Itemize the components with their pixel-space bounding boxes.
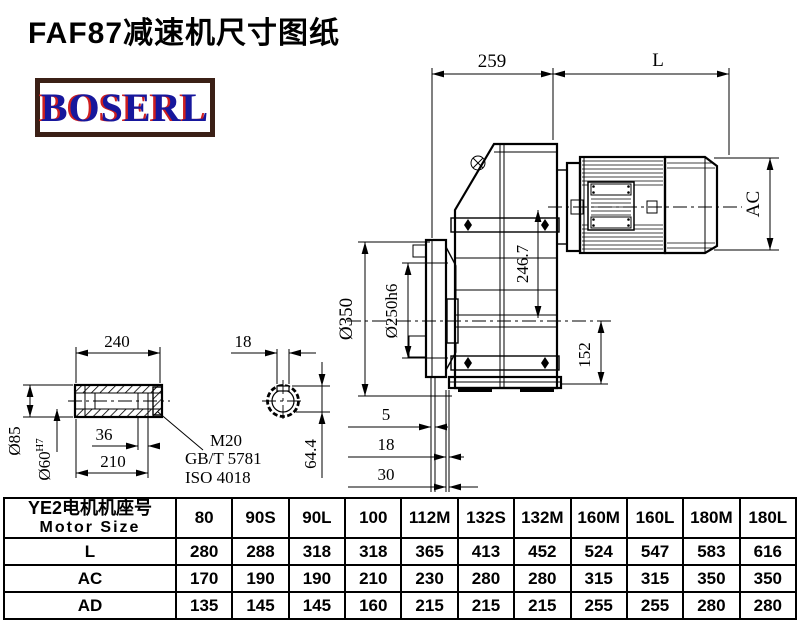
- ac-dimension: AC: [714, 158, 779, 250]
- table-header-row: YE2电机机座号 Motor Size 80 90S 90L 100 112M …: [4, 498, 796, 538]
- value-cell: 135: [176, 592, 232, 619]
- motor-size-header-cell: YE2电机机座号 Motor Size: [4, 498, 176, 538]
- value-cell: 280: [514, 565, 570, 592]
- col-header-180M: 180M: [683, 498, 739, 538]
- col-header-132M: 132M: [514, 498, 570, 538]
- value-cell: 215: [458, 592, 514, 619]
- bolt-icon: [464, 357, 472, 369]
- value-cell: 583: [683, 538, 739, 565]
- standard-gbt-label: GB/T 5781: [185, 449, 262, 468]
- value-cell: 255: [627, 592, 683, 619]
- keyway-width-label: 18: [235, 332, 252, 351]
- thread-spec-label: M20: [210, 431, 242, 450]
- table-row-AD: AD 135 145 145 160 215 215 215 255 255 2…: [4, 592, 796, 619]
- height-dimensions: 246.7 152: [513, 210, 608, 384]
- value-cell: 215: [514, 592, 570, 619]
- dim-85-label: Ø85: [5, 426, 24, 455]
- dimension-drawing-canvas: 259 L AC: [0, 0, 800, 497]
- dim-18-label: 18: [378, 435, 395, 454]
- dim-30-label: 30: [378, 465, 395, 484]
- row-label-AD: AD: [4, 592, 176, 619]
- value-cell: 318: [345, 538, 401, 565]
- value-cell: 315: [571, 565, 627, 592]
- bolt-icon: [541, 357, 549, 369]
- value-cell: 255: [571, 592, 627, 619]
- value-cell: 350: [740, 565, 796, 592]
- bolt-icon: [541, 219, 549, 231]
- value-cell: 547: [627, 538, 683, 565]
- flange-diameter-dimensions: Ø350 Ø250h6: [336, 242, 452, 396]
- table-row-AC: AC 170 190 190 210 230 280 280 315 315 3…: [4, 565, 796, 592]
- row-label-L: L: [4, 538, 176, 565]
- dim-350-label: Ø350: [336, 298, 357, 340]
- brand-logo-text: BOSERL: [41, 88, 209, 128]
- dim-259-label: 259: [478, 51, 507, 72]
- shaft-detail-view: 240 Ø85 Ø60 H7 36 210 M20 GB/T 5781 ISO …: [5, 332, 262, 487]
- value-cell: 160: [345, 592, 401, 619]
- motor-spec-table: YE2电机机座号 Motor Size 80 90S 90L 100 112M …: [3, 497, 797, 620]
- col-header-90S: 90S: [232, 498, 288, 538]
- value-cell: 190: [232, 565, 288, 592]
- dim-152-label: 152: [575, 342, 594, 368]
- value-cell: 315: [627, 565, 683, 592]
- value-cell: 413: [458, 538, 514, 565]
- dim-250h6-label: Ø250h6: [382, 284, 401, 339]
- dim-240-label: 240: [104, 332, 130, 351]
- col-header-112M: 112M: [401, 498, 457, 538]
- dim-36-label: 36: [96, 425, 113, 444]
- dim-60-tolerance-label: H7: [34, 438, 46, 452]
- value-cell: 215: [401, 592, 457, 619]
- flange-offset-dimensions: 5 18 30: [348, 378, 478, 492]
- col-header-80: 80: [176, 498, 232, 538]
- main-view: 259 L AC: [336, 50, 779, 492]
- bolt-icon: [464, 219, 472, 231]
- value-cell: 318: [289, 538, 345, 565]
- value-cell: 350: [683, 565, 739, 592]
- col-header-160L: 160L: [627, 498, 683, 538]
- dim-210-label: 210: [100, 452, 126, 471]
- dim-L-label: L: [652, 50, 664, 71]
- motor: [548, 157, 742, 253]
- value-cell: 288: [232, 538, 288, 565]
- value-cell: 145: [289, 592, 345, 619]
- dim-60-label: Ø60: [35, 451, 54, 480]
- value-cell: 280: [740, 592, 796, 619]
- keyway-depth-label: 64.4: [301, 439, 320, 469]
- value-cell: 280: [176, 538, 232, 565]
- col-header-132S: 132S: [458, 498, 514, 538]
- gearbox-housing: [449, 144, 561, 390]
- header-cn-label: YE2电机机座号: [5, 499, 175, 519]
- value-cell: 280: [683, 592, 739, 619]
- value-cell: 452: [514, 538, 570, 565]
- page-title: FAF87减速机尺寸图纸: [28, 8, 340, 52]
- value-cell: 230: [401, 565, 457, 592]
- stator-core: [588, 182, 634, 230]
- value-cell: 145: [232, 592, 288, 619]
- dim-5-label: 5: [382, 405, 391, 424]
- value-cell: 170: [176, 565, 232, 592]
- value-cell: 365: [401, 538, 457, 565]
- value-cell: 190: [289, 565, 345, 592]
- row-label-AC: AC: [4, 565, 176, 592]
- standard-iso-label: ISO 4018: [185, 468, 251, 487]
- value-cell: 524: [571, 538, 627, 565]
- header-en-label: Motor Size: [5, 519, 175, 537]
- value-cell: 280: [458, 565, 514, 592]
- dim-246-7-label: 246.7: [513, 244, 532, 283]
- brand-logo: BOSERL: [35, 78, 215, 137]
- col-header-90L: 90L: [289, 498, 345, 538]
- fan-cowl: [665, 157, 717, 253]
- col-header-180L: 180L: [740, 498, 796, 538]
- dim-AC-label: AC: [743, 191, 764, 217]
- value-cell: 210: [345, 565, 401, 592]
- table-row-L: L 280 288 318 318 365 413 452 524 547 58…: [4, 538, 796, 565]
- col-header-160M: 160M: [571, 498, 627, 538]
- col-header-100: 100: [345, 498, 401, 538]
- value-cell: 616: [740, 538, 796, 565]
